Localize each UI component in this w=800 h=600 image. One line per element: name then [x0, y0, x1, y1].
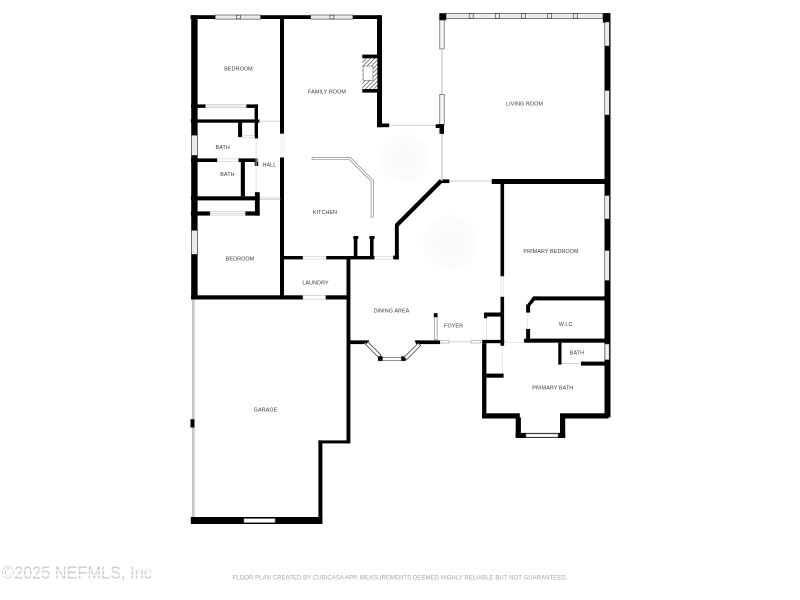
svg-text:GARAGE: GARAGE — [254, 407, 278, 413]
svg-text:PRIMARY BATH: PRIMARY BATH — [532, 386, 573, 392]
svg-text:LAUNDRY: LAUNDRY — [302, 280, 329, 286]
svg-text:BATH: BATH — [216, 145, 230, 151]
svg-text:KITCHEN: KITCHEN — [313, 210, 337, 216]
svg-text:©2025 NEFMLS, Inc: ©2025 NEFMLS, Inc — [2, 563, 152, 583]
svg-text:FOYER: FOYER — [444, 324, 463, 330]
svg-text:PRIMARY BEDROOM: PRIMARY BEDROOM — [523, 249, 579, 255]
svg-text:W.I.C.: W.I.C. — [559, 322, 574, 328]
svg-text:FAMILY ROOM: FAMILY ROOM — [308, 89, 346, 95]
svg-text:DINING AREA: DINING AREA — [374, 308, 410, 314]
svg-text:BATH: BATH — [220, 172, 234, 178]
svg-text:BATH: BATH — [570, 351, 584, 357]
svg-text:LIVING ROOM: LIVING ROOM — [506, 101, 543, 107]
svg-text:FLOOR PLAN CREATED BY CUBICASA: FLOOR PLAN CREATED BY CUBICASA APP. MEAS… — [233, 575, 568, 582]
svg-text:BEDROOM: BEDROOM — [224, 67, 253, 73]
svg-text:HALL: HALL — [262, 163, 276, 169]
svg-text:BEDROOM: BEDROOM — [226, 256, 255, 262]
